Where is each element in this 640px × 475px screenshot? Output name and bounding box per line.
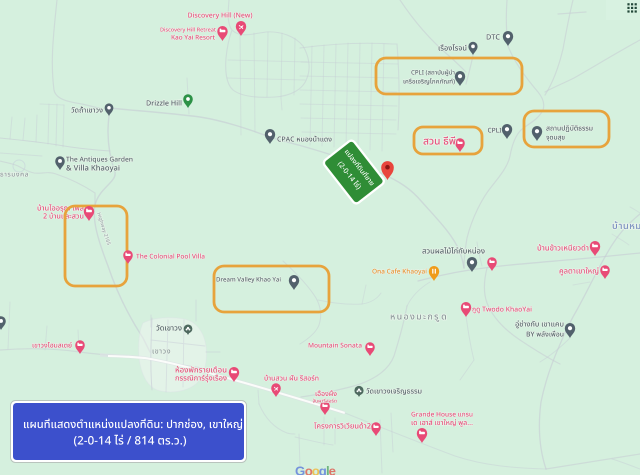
- svg-text:G: G: [295, 464, 305, 475]
- svg-text:e: e: [329, 464, 336, 475]
